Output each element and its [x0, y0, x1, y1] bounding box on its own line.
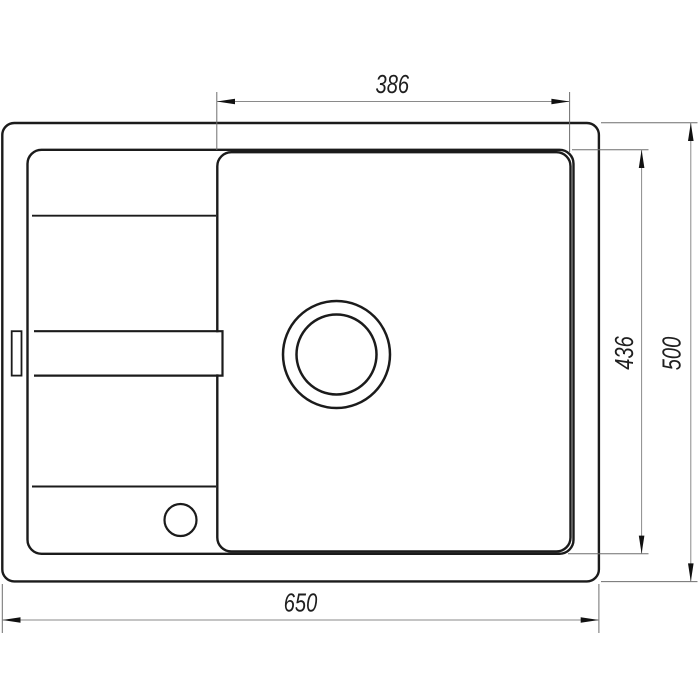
svg-text:436: 436 — [611, 336, 639, 370]
svg-text:386: 386 — [376, 71, 410, 99]
svg-text:500: 500 — [659, 337, 687, 371]
svg-text:650: 650 — [284, 590, 318, 618]
